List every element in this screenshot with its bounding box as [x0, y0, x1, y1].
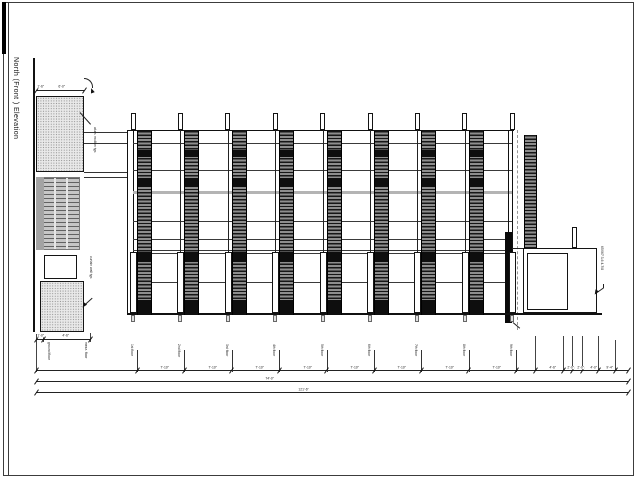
louver-dark-band	[280, 150, 293, 157]
roof-stub-post	[510, 113, 515, 130]
grid-label: 1st floor	[130, 344, 138, 377]
louver-dark-band	[470, 178, 483, 187]
louver-dark-band	[375, 178, 388, 187]
louver-dark-band	[138, 150, 151, 157]
span-dim-text: 7'-10"	[160, 366, 169, 369]
grid-label: 8th floor	[462, 344, 470, 378]
tower-top-dim-text: 6'-0"	[58, 85, 66, 88]
louver-column	[327, 131, 342, 315]
grid-label: 3rd floor	[225, 344, 233, 378]
tower-window-box	[44, 255, 77, 279]
entry-inner-box	[527, 253, 568, 310]
louver-panel-mullion	[66, 178, 68, 249]
span-dim-text: 7'-10"	[445, 366, 454, 369]
ext-line	[615, 340, 616, 370]
overall-dim-text-2: 121'-6"	[298, 388, 309, 391]
lower-pilaster	[320, 252, 327, 313]
grid-dim-line	[36, 370, 628, 371]
roof-stub-post	[462, 113, 467, 130]
roof-stub-post	[368, 113, 373, 130]
bay-mullion-line	[465, 130, 466, 252]
span-dim-text: 7'-10"	[208, 366, 217, 369]
overall-dim-text-1: 74'-0"	[265, 377, 274, 380]
base-foot	[131, 315, 135, 322]
curtainwall-note: curtain wall typ.	[89, 256, 97, 316]
louver-dark-band	[470, 252, 483, 262]
lower-pilaster	[414, 252, 421, 313]
tower-top-leader-curve	[84, 78, 93, 88]
grid-label: 7th floor	[414, 344, 422, 378]
roof-stub-post	[320, 113, 325, 130]
bay-mullion-line	[370, 130, 371, 252]
span-dim-text: 4'-6"	[549, 366, 557, 369]
louver-dark-band	[138, 252, 151, 262]
louver-dark-band	[233, 150, 246, 157]
louver-column	[184, 131, 199, 315]
louver-dark-band	[280, 252, 293, 262]
louver-dark-band	[185, 252, 198, 262]
span-dim-text: 9'-4"	[606, 366, 614, 369]
mullion-note: alum. mullion typ.	[93, 127, 101, 194]
lower-pilaster	[130, 252, 137, 313]
bay-mullion-line	[180, 130, 181, 252]
louver-dark-band	[422, 300, 435, 315]
tower-top-dim-text: 1'-6"	[37, 85, 45, 88]
sheet: North (Front ) Elevation 1'-6"6'-0"alum.…	[0, 0, 640, 480]
building-left-edge	[127, 130, 128, 315]
ext-line	[563, 336, 564, 370]
base-foot	[463, 315, 467, 322]
louver-dark-band	[375, 150, 388, 157]
louver-column	[469, 131, 484, 315]
grid-label: ground floor	[47, 342, 55, 390]
span-dim-text: 7'-10"	[397, 366, 406, 369]
base-foot	[321, 315, 325, 322]
span-dim-text: 2'-0"	[567, 366, 575, 369]
louver-dark-band	[375, 300, 388, 315]
grid-label: 6th floor	[367, 344, 375, 378]
tower-bottom-dim-text: 4'-6"	[62, 334, 70, 337]
louver-dark-band	[470, 300, 483, 315]
connector-line	[84, 172, 127, 173]
base-foot	[273, 315, 277, 322]
lower-pilaster	[272, 252, 279, 313]
right-dashed-gridline	[517, 130, 518, 330]
roof-stub-post	[178, 113, 183, 130]
louver-dark-band	[233, 252, 246, 262]
louver-column	[137, 131, 152, 315]
louver-dark-band	[185, 178, 198, 187]
bay-mullion-line	[323, 130, 324, 252]
louver-dark-band	[328, 150, 341, 157]
lower-pilaster	[509, 252, 516, 313]
bay-mullion-line	[228, 130, 229, 252]
louver-dark-band	[280, 178, 293, 187]
louver-dark-band	[422, 150, 435, 157]
connector-line	[84, 143, 127, 144]
base-foot	[178, 315, 182, 322]
lower-pilaster	[177, 252, 184, 313]
span-dim-text: 2'-0"	[577, 366, 585, 369]
louver-dark-band	[422, 252, 435, 262]
leader-arrowhead	[89, 87, 94, 93]
louver-column	[279, 131, 294, 315]
bay-mullion-line	[417, 130, 418, 252]
louver-dark-band	[328, 178, 341, 187]
roof-stub-post	[131, 113, 136, 130]
louver-panel-mullion	[54, 178, 56, 249]
louver-column	[374, 131, 389, 315]
connector-line	[84, 132, 127, 133]
span-dim-text: 7'-10"	[303, 366, 312, 369]
leader-arrowhead	[81, 302, 87, 308]
grid-label: 2nd floor	[177, 344, 185, 380]
tower-top-dim-line	[36, 90, 84, 91]
tower-bottom-dim-text: 1'-0"	[37, 334, 45, 337]
grid-label: 4th floor	[272, 344, 280, 378]
tower-wall-line	[33, 58, 35, 332]
louver-dark-band	[470, 150, 483, 157]
lower-pilaster	[367, 252, 374, 313]
stipple-panel-upper	[36, 96, 84, 172]
louver-dark-band	[375, 252, 388, 262]
stipple-panel-lower	[40, 281, 84, 332]
base-foot	[415, 315, 419, 322]
roof-stub-post	[415, 113, 420, 130]
right-base-line	[505, 313, 602, 315]
louver-column	[421, 131, 436, 315]
base-foot	[510, 315, 514, 322]
bay-mullion-line	[275, 130, 276, 252]
ext-line	[598, 336, 599, 370]
right-annotation-note: 65X67 3-6 4-7/8	[600, 246, 608, 308]
louver-dark-band	[138, 178, 151, 187]
lower-pilaster	[462, 252, 469, 313]
roof-stub-post	[225, 113, 230, 130]
connector-line	[84, 177, 127, 178]
span-dim-text: 7'-10"	[350, 366, 359, 369]
louver-dark-band	[328, 300, 341, 315]
louver-dark-band	[185, 150, 198, 157]
lower-pilaster	[225, 252, 232, 313]
louver-dark-band	[138, 300, 151, 315]
grid-label: 5th floor	[320, 344, 328, 378]
flag-pole	[572, 227, 577, 248]
overall-dim-line-2	[36, 392, 628, 393]
louver-dark-band	[233, 300, 246, 315]
louver-panel-edge	[36, 177, 44, 250]
louver-dark-band	[328, 252, 341, 262]
span-dim-text: 4'-0"	[590, 366, 598, 369]
span-dim-text: 7'-10"	[255, 366, 264, 369]
louver-dark-band	[422, 178, 435, 187]
base-foot	[226, 315, 230, 322]
roof-stub-post	[273, 113, 278, 130]
span-dim-text: 7'-10"	[492, 366, 501, 369]
grid-label: mezz. floor	[84, 342, 92, 386]
louver-column	[232, 131, 247, 315]
ext-line	[535, 336, 536, 370]
elevation-drawing: 1'-6"6'-0"alum. mullion typ.curtain wall…	[0, 0, 640, 480]
base-foot	[368, 315, 372, 322]
overall-dim-line-1	[36, 381, 628, 382]
louver-dark-band	[185, 300, 198, 315]
louver-dark-band	[233, 178, 246, 187]
leader-arrowhead	[593, 289, 599, 295]
louver-dark-band	[280, 300, 293, 315]
grid-label: 9th floor	[509, 344, 517, 378]
